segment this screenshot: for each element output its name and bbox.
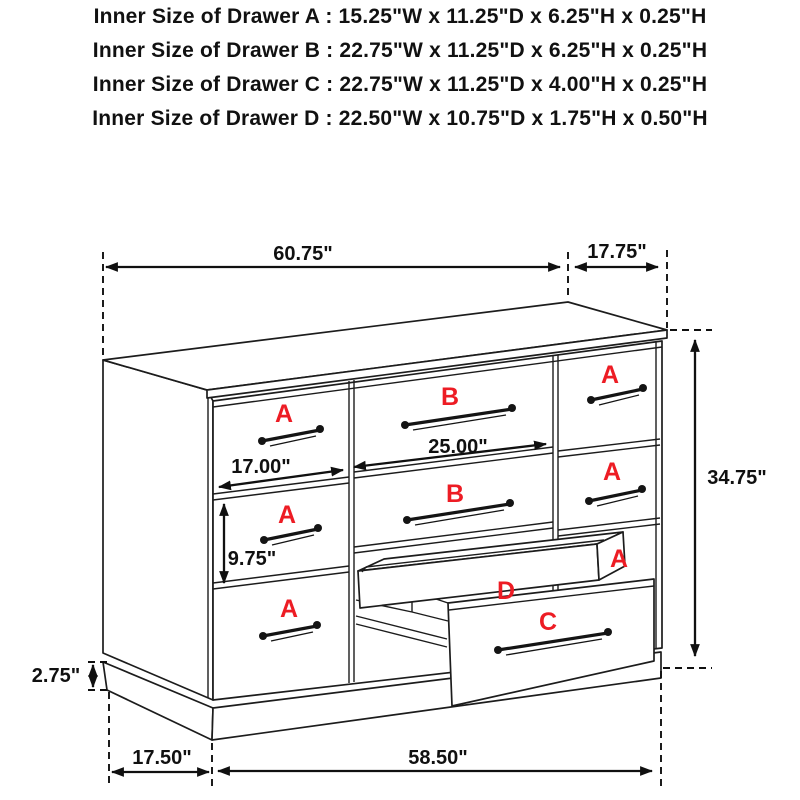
drawer-label-d: D [497,577,515,605]
dim-body-width: 58.50" [408,747,468,769]
drawer-label-b-2: B [446,480,464,508]
drawer-label-a-left-3: A [280,595,298,623]
drawer-label-b-1: B [441,383,459,411]
dresser-line-drawing: A A A B B A A A D C [0,0,800,800]
drawer-label-a-left-2: A [278,501,296,529]
dim-center-drawer-width: 25.00" [428,436,488,458]
dim-top-depth: 17.75" [587,241,647,263]
dim-overall-height: 34.75" [707,467,767,489]
dim-left-drawer-width: 17.00" [231,456,291,478]
dim-base-height: 2.75" [32,665,80,687]
dresser-dimension-diagram: Inner Size of Drawer A : 15.25"W x 11.25… [0,0,800,800]
drawer-label-c: C [539,608,557,636]
drawer-label-a-left-1: A [275,400,293,428]
dim-drawer-height: 9.75" [228,548,276,570]
drawer-label-a-right-3: A [610,545,628,573]
drawer-label-a-right-2: A [603,458,621,486]
dim-top-width: 60.75" [273,243,333,265]
cabinet-left-side [103,360,213,700]
dim-depth: 17.50" [132,747,192,769]
drawer-label-a-right-1: A [601,361,619,389]
